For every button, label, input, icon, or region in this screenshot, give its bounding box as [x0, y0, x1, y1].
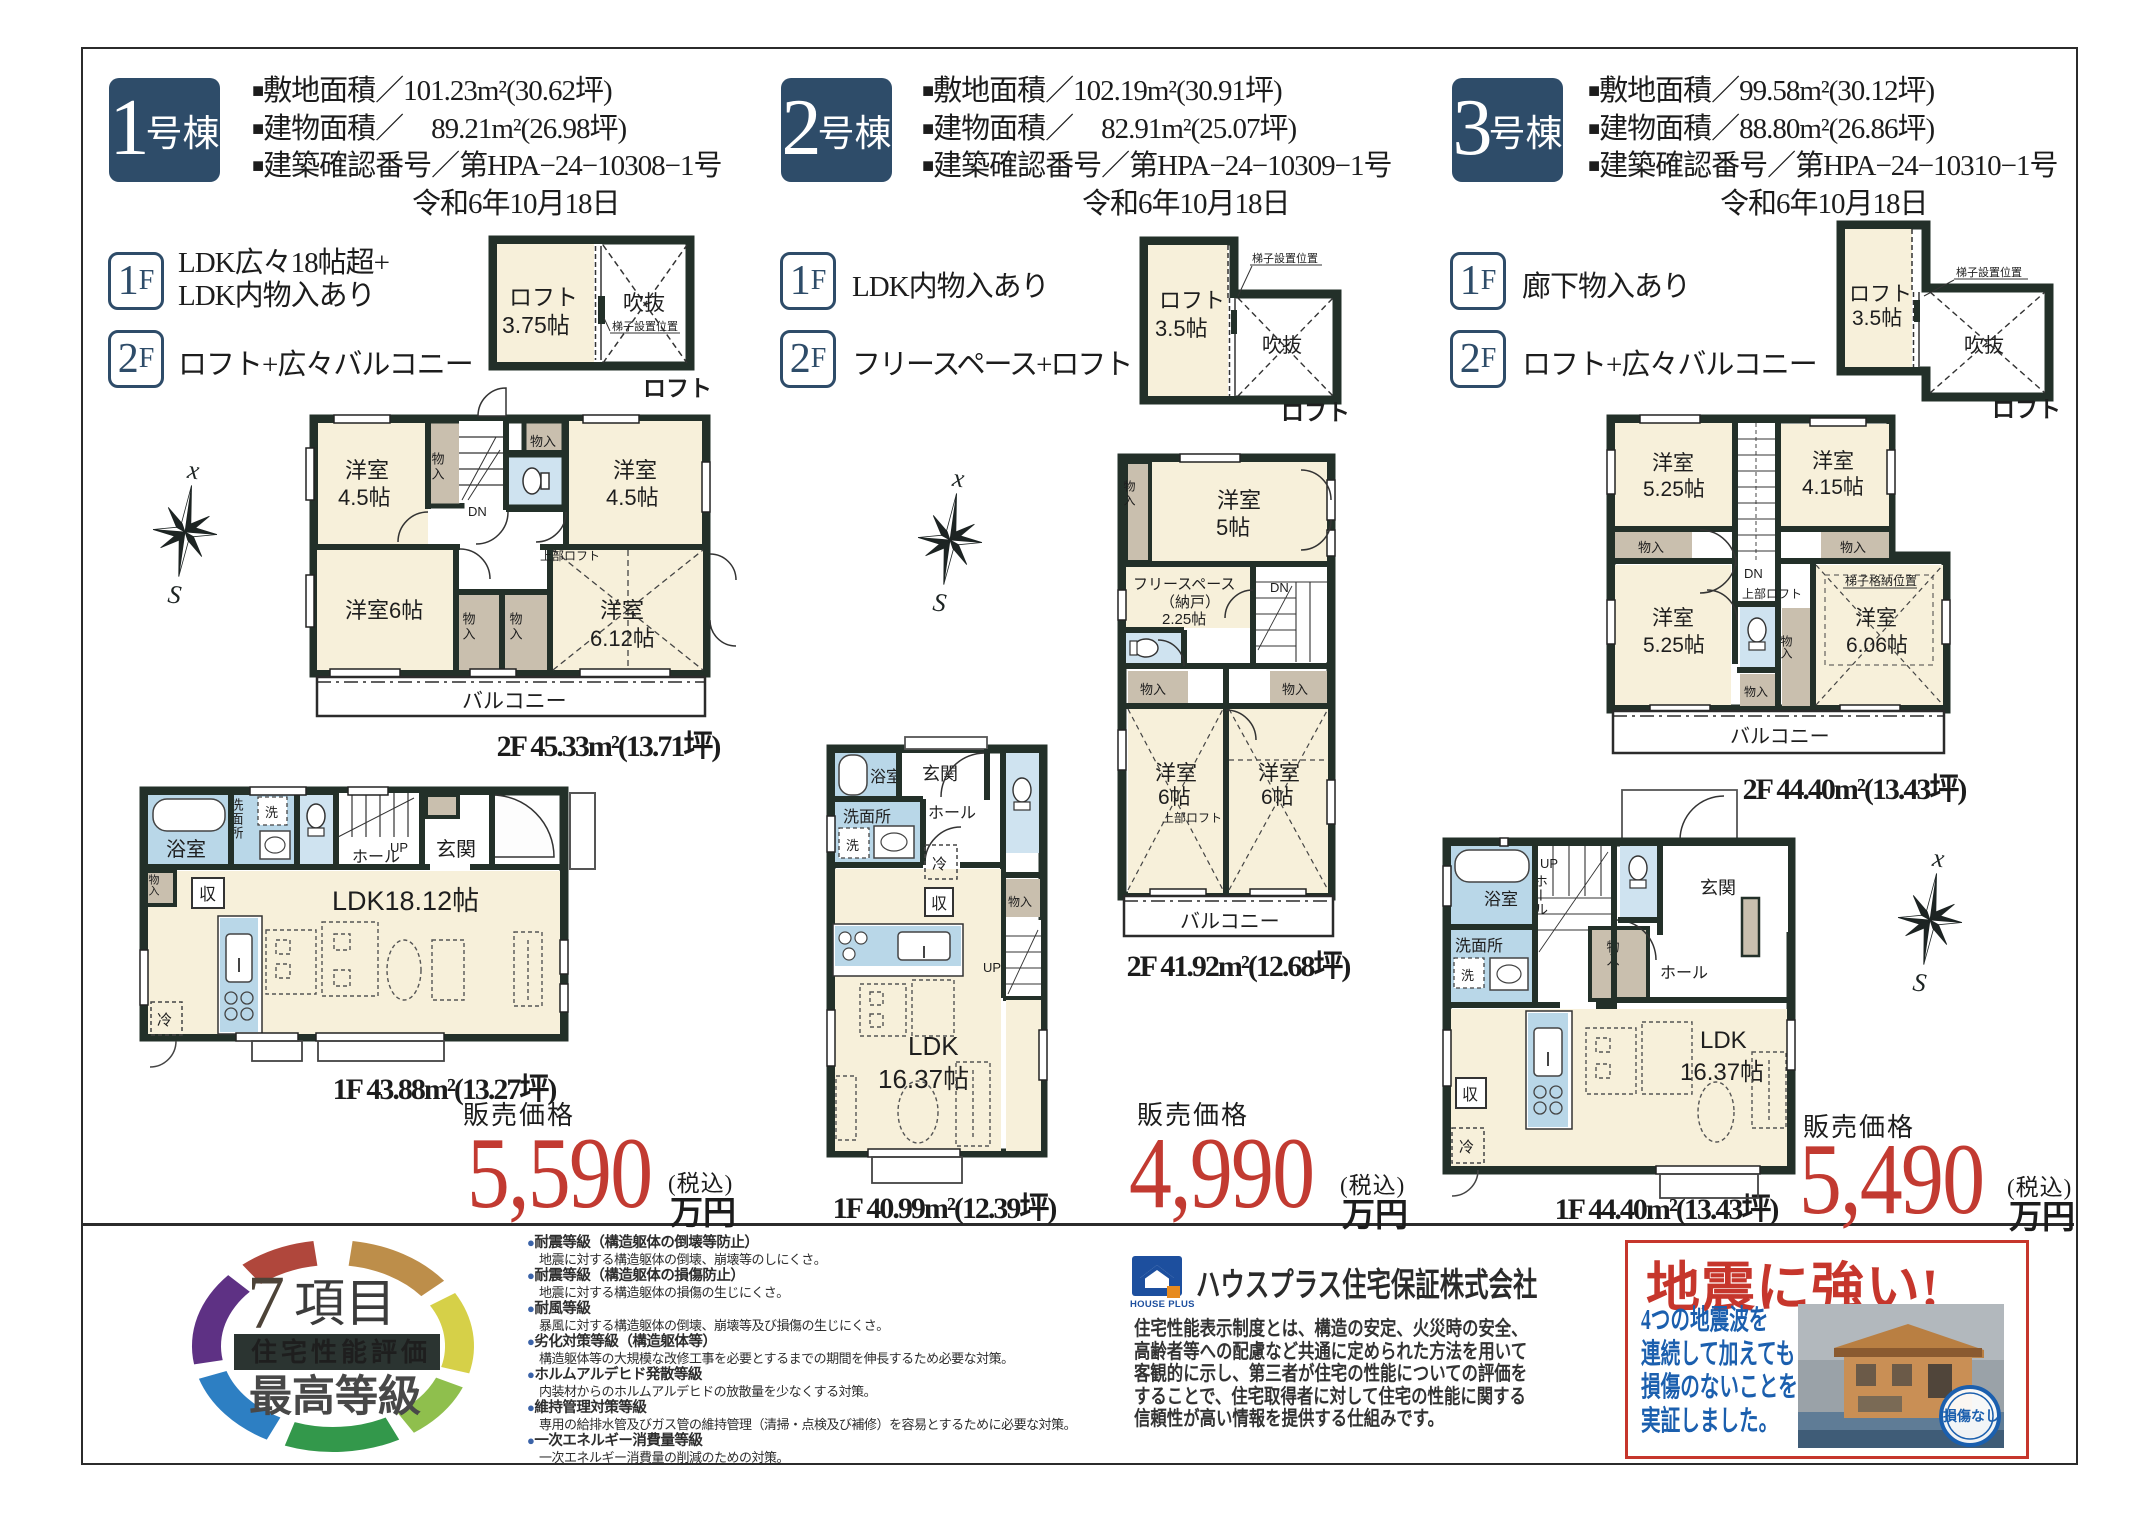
- svg-text:物入: 物入: [1282, 682, 1308, 697]
- svg-text:洗: 洗: [1461, 968, 1474, 983]
- svg-text:洋室: 洋室: [1652, 607, 1694, 630]
- svg-text:ロフト: ロフト: [509, 284, 578, 310]
- svg-text:上部ロフト: 上部ロフト: [540, 548, 600, 563]
- svg-text:DN: DN: [1270, 580, 1289, 595]
- svg-text:洋室: 洋室: [600, 598, 644, 623]
- svg-text:浴室: 浴室: [1484, 890, 1518, 909]
- svg-text:4.5帖: 4.5帖: [606, 485, 659, 510]
- svg-text:洗: 洗: [265, 805, 278, 820]
- svg-text:5.25帖: 5.25帖: [1643, 634, 1705, 657]
- svg-text:ホール: ホール: [1660, 965, 1708, 982]
- svg-text:UP: UP: [983, 960, 1001, 975]
- svg-text:梯子設置位置: 梯子設置位置: [612, 319, 678, 333]
- svg-text:玄関: 玄関: [436, 838, 476, 861]
- svg-text:玄関: 玄関: [1700, 878, 1736, 898]
- svg-text:浴室: 浴室: [166, 838, 206, 861]
- svg-text:物入: 物入: [1008, 895, 1032, 909]
- svg-text:洋室: 洋室: [1155, 762, 1197, 785]
- svg-text:梯子設置位置: 梯子設置位置: [1956, 265, 2022, 279]
- svg-text:LDK: LDK: [1700, 1027, 1747, 1054]
- svg-text:洋室: 洋室: [1855, 607, 1897, 630]
- svg-text:洋室: 洋室: [1258, 762, 1300, 785]
- svg-text:ロフト: ロフト: [1992, 396, 2061, 422]
- svg-text:バルコニー: バルコニー: [1180, 911, 1280, 933]
- svg-text:4.15帖: 4.15帖: [1802, 476, 1864, 499]
- svg-text:HOUSE PLUS: HOUSE PLUS: [1130, 1299, 1195, 1310]
- svg-text:ホール: ホール: [928, 805, 976, 822]
- svg-text:5帖: 5帖: [1216, 515, 1250, 540]
- svg-text:物入: 物入: [1840, 540, 1866, 555]
- svg-text:冷: 冷: [1459, 1139, 1474, 1156]
- svg-text:ロフト: ロフト: [1159, 288, 1225, 313]
- svg-text:損傷なし: 損傷なし: [1943, 1408, 1999, 1424]
- svg-text:（納戸）: （納戸）: [1160, 594, 1220, 611]
- svg-text:洋室6帖: 洋室6帖: [345, 598, 423, 623]
- svg-text:梯子格納位置: 梯子格納位置: [1845, 573, 1917, 588]
- svg-text:物入: 物入: [1140, 682, 1166, 697]
- svg-text:物入: 物入: [1744, 685, 1768, 699]
- svg-text:梯子設置位置: 梯子設置位置: [1252, 251, 1318, 265]
- svg-text:吹抜: 吹抜: [623, 292, 665, 315]
- svg-text:物入: 物入: [508, 612, 523, 642]
- svg-text:吹抜: 吹抜: [1964, 334, 2004, 357]
- svg-text:3.75帖: 3.75帖: [502, 312, 570, 338]
- svg-text:洋室: 洋室: [345, 458, 389, 483]
- svg-text:吹抜: 吹抜: [1262, 334, 1302, 357]
- svg-text:収: 収: [931, 895, 947, 913]
- svg-text:洋室: 洋室: [1812, 450, 1854, 473]
- svg-text:4.5帖: 4.5帖: [338, 485, 391, 510]
- svg-text:LDK18.12帖: LDK18.12帖: [332, 886, 479, 916]
- svg-text:バルコニー: バルコニー: [462, 690, 567, 713]
- svg-text:洋室: 洋室: [1217, 488, 1261, 513]
- svg-text:ロフト: ロフト: [1849, 283, 1912, 306]
- svg-text:冷: 冷: [932, 856, 947, 873]
- svg-text:バルコニー: バルコニー: [1730, 726, 1830, 748]
- svg-text:6.12帖: 6.12帖: [590, 626, 655, 651]
- svg-text:洗面所: 洗面所: [1455, 937, 1503, 955]
- svg-text:フリースペース: フリースペース: [1133, 576, 1235, 593]
- svg-text:ロフト: ロフト: [1281, 399, 1350, 425]
- svg-text:収: 収: [199, 885, 216, 904]
- svg-text:物入: 物入: [530, 434, 556, 449]
- svg-text:冷: 冷: [157, 1012, 172, 1029]
- svg-text:6.06帖: 6.06帖: [1846, 634, 1908, 657]
- svg-text:5.25帖: 5.25帖: [1643, 478, 1705, 501]
- svg-text:洗: 洗: [846, 838, 859, 853]
- svg-text:ホール: ホール: [352, 849, 400, 866]
- svg-text:3.5帖: 3.5帖: [1155, 316, 1208, 341]
- svg-text:2.25帖: 2.25帖: [1162, 611, 1206, 628]
- svg-text:DN: DN: [1744, 566, 1763, 581]
- svg-text:3.5帖: 3.5帖: [1852, 307, 1902, 330]
- svg-text:物入: 物入: [461, 612, 476, 642]
- svg-text:UP: UP: [1540, 856, 1558, 871]
- svg-text:項目: 項目: [294, 1277, 396, 1333]
- svg-text:上部ロフト: 上部ロフト: [1742, 586, 1802, 601]
- svg-text:DN: DN: [468, 504, 487, 519]
- svg-text:物入: 物入: [430, 452, 445, 482]
- svg-text:洋室: 洋室: [613, 458, 657, 483]
- svg-text:6帖: 6帖: [1261, 786, 1294, 809]
- svg-text:洗面所: 洗面所: [843, 808, 891, 826]
- svg-text:物入: 物入: [147, 873, 160, 896]
- svg-text:7: 7: [247, 1261, 285, 1345]
- svg-text:収: 収: [1462, 1086, 1478, 1104]
- svg-text:上部ロフト: 上部ロフト: [1162, 810, 1222, 825]
- svg-text:住宅性能評価: 住宅性能評価: [251, 1337, 431, 1367]
- svg-text:物入: 物入: [1122, 480, 1136, 508]
- svg-text:物入: 物入: [1638, 540, 1664, 555]
- svg-text:最高等級: 最高等級: [249, 1373, 421, 1421]
- svg-text:6帖: 6帖: [1158, 786, 1191, 809]
- svg-text:洋室: 洋室: [1652, 452, 1694, 475]
- svg-text:物入: 物入: [1779, 635, 1793, 659]
